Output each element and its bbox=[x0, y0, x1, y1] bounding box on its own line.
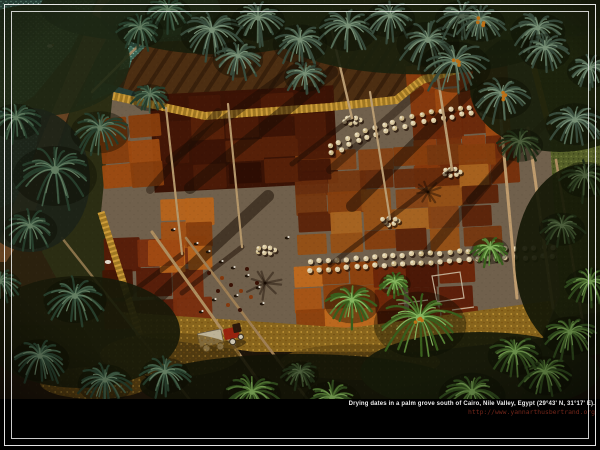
vignette bbox=[0, 0, 600, 400]
caption-bar: Drying dates in a palm grove south of Ca… bbox=[0, 399, 600, 450]
aerial-photo bbox=[0, 0, 600, 400]
aerial-photo-svg bbox=[0, 0, 600, 400]
photo-credit-url: http://www.yannarthusbertrand.org bbox=[0, 408, 595, 416]
photo-caption: Drying dates in a palm grove south of Ca… bbox=[0, 401, 595, 408]
photo-card: Drying dates in a palm grove south of Ca… bbox=[0, 0, 600, 450]
